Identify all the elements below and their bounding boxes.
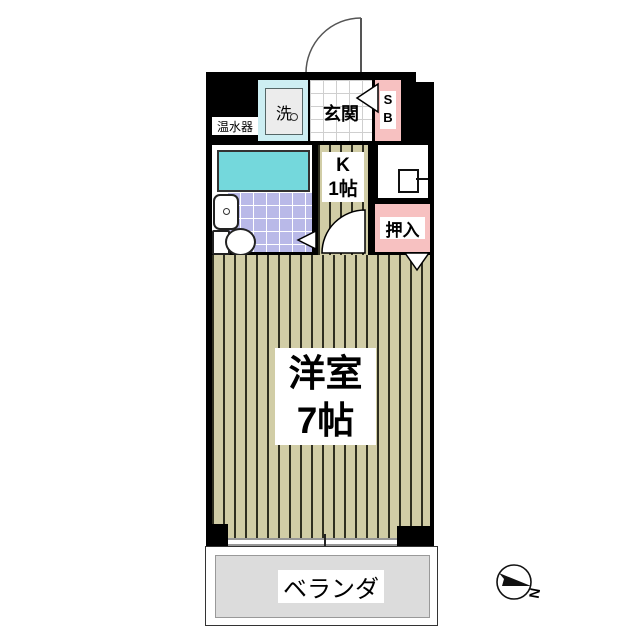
water-heater-label: 温水器 [212, 117, 258, 135]
closet-label: 押入 [380, 217, 425, 239]
bathtub-icon [217, 150, 310, 192]
compass-north-label: N [526, 587, 544, 600]
washer-drain-icon [290, 113, 298, 121]
balcony-floor: ベランダ [215, 555, 430, 618]
main-room: 洋室 7帖 [212, 255, 430, 538]
closet-door-arrow-icon [403, 251, 431, 272]
entrance-door-gap [416, 72, 468, 82]
bathroom-door-arrow-icon [296, 229, 318, 251]
sink-drain-icon [223, 208, 230, 215]
stove-fixture-icon [398, 169, 419, 193]
fixture-nook [378, 145, 428, 198]
kitchen-door-swing-icon [319, 207, 367, 255]
kitchen: K 1帖 [318, 145, 368, 255]
wall-stub-right [397, 526, 434, 546]
balcony-window-icon [228, 538, 397, 546]
closet: 押入 [375, 204, 430, 252]
entrance-door-swing-icon [303, 14, 365, 76]
kitchen-label: K 1帖 [322, 152, 364, 202]
entrance-step-arrow-icon [355, 82, 381, 115]
balcony-label: ベランダ [278, 570, 384, 603]
fixture-pipe-icon [416, 178, 428, 180]
toilet-bowl-icon [225, 228, 256, 256]
laundry-area: 洗 [258, 80, 308, 141]
main-room-label: 洋室 7帖 [275, 348, 376, 445]
floorplan-canvas: 温水器 洗 玄関 S B [0, 0, 640, 640]
balcony: ベランダ [205, 546, 438, 626]
washing-machine-label: 洗 [276, 100, 292, 124]
shoe-box-label: S B [380, 91, 396, 129]
wall-stub-left [206, 524, 228, 546]
sink-icon [213, 194, 239, 230]
washing-machine-icon: 洗 [265, 88, 303, 135]
main-unit-outline: 温水器 洗 玄関 S B [206, 72, 434, 546]
compass-icon: N [492, 560, 552, 620]
